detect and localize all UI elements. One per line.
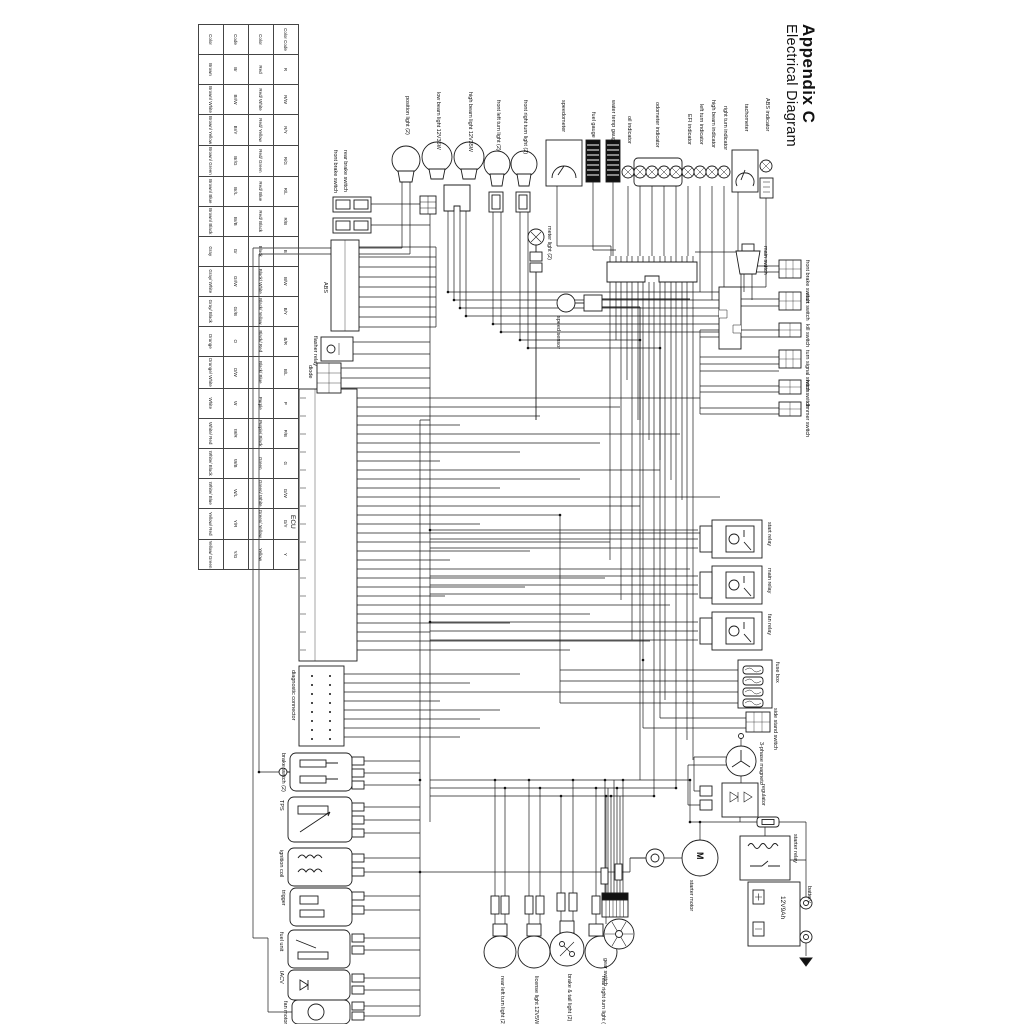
rear-bulbs bbox=[484, 893, 617, 968]
label-brake-tail-light: brake & tail light (2) bbox=[566, 974, 572, 1021]
label-ecu: ECU bbox=[289, 515, 296, 529]
label-tachometer: tachometer bbox=[743, 104, 749, 132]
label-speedometer: speedometer bbox=[560, 100, 566, 132]
label-oil-indicator: oil indicator bbox=[626, 116, 632, 144]
label-iacv: IACV bbox=[278, 971, 284, 984]
label-main-switch: main switch bbox=[762, 246, 768, 275]
label-gear-switch: gear switch bbox=[602, 958, 608, 986]
label-low-beam-light: low beam light 12V35W bbox=[435, 92, 441, 150]
label-diagnostic-connector: diagnostic connector bbox=[290, 670, 296, 720]
label-start-relay: start relay bbox=[766, 522, 772, 546]
label-diode: diode bbox=[307, 365, 313, 378]
label-rear-left-turn: rear left turn light (2) bbox=[499, 976, 505, 1024]
color-table-row-codes-2: CodeBrBr/WBr/YBr/GBr/LBr/BGrGr/WGr/BOO/W… bbox=[224, 25, 249, 570]
left-small-units bbox=[317, 197, 371, 393]
label-ignition-coil: ignition coil bbox=[278, 850, 284, 877]
battery-spec-text: 12V9Ah bbox=[779, 896, 786, 919]
power-section bbox=[646, 734, 812, 967]
label-starter-relay: starter relay bbox=[792, 834, 798, 863]
starter-motor-m-symbol: M bbox=[695, 852, 705, 860]
label-main-relay: main relay bbox=[766, 568, 772, 593]
page-title: Appendix C bbox=[798, 24, 818, 123]
label-fuse-box: fuse box bbox=[774, 662, 780, 683]
label-odometer-indicator: odometer indicator bbox=[654, 102, 660, 148]
label-efi-indicator: EFI indicator bbox=[686, 114, 692, 145]
label-meter-light: meter light (2) bbox=[546, 226, 552, 260]
bottom-left-components bbox=[279, 753, 364, 1024]
label-battery: battery bbox=[806, 886, 812, 903]
label-magneto: 3-phase magneto bbox=[758, 742, 764, 785]
label-high-beam-indicator: high beam indicator bbox=[710, 100, 716, 148]
label-sw-start: start switch bbox=[804, 293, 810, 321]
ecu-block bbox=[299, 389, 357, 746]
label-left-turn-indicator: left turn indicator bbox=[698, 104, 704, 145]
label-rear-brake-switch: rear brake switch bbox=[342, 150, 348, 192]
right-column-units bbox=[700, 244, 801, 732]
label-license-light: license light 12V5W bbox=[533, 976, 539, 1024]
label-side-stand-switch: side stand switch bbox=[772, 708, 778, 750]
color-table-row-colors-1: ColorRedRed/ WhiteRed/ YellowRed/ GreenR… bbox=[249, 25, 274, 570]
label-starter-motor: starter motor bbox=[688, 880, 694, 911]
label-right-turn-indicator: right turn indicator bbox=[722, 106, 728, 150]
color-table-row-codes-1: Color CodeRR/WR/YR/GR/LR/BBB/WB/YB/RB/LP… bbox=[274, 25, 299, 570]
component-symbols bbox=[279, 140, 812, 1024]
label-sw-kill: kill switch bbox=[804, 324, 810, 347]
color-table-row-colors-2: ColorBrownBrown/ WhiteBrown/ YellowBrown… bbox=[199, 25, 224, 570]
label-fuel-unit: fuel unit bbox=[278, 932, 284, 951]
label-fan-motor: fan motor bbox=[282, 1001, 288, 1024]
label-position-light: position light (2) bbox=[404, 96, 410, 135]
label-trigger: trigger bbox=[280, 890, 286, 906]
label-front-left-turn: front left turn light (2) bbox=[495, 100, 501, 151]
label-fuel-gauge: fuel gauge bbox=[590, 112, 596, 138]
diagram-page: Appendix C Electrical Diagram Color Code… bbox=[0, 0, 1024, 1024]
label-front-brake-switch: front brake switch bbox=[332, 150, 338, 193]
wiring-diagram-canvas bbox=[0, 0, 1024, 1024]
label-high-beam-light: high beam light 12V35W bbox=[467, 92, 473, 152]
front-bulbs bbox=[392, 142, 537, 214]
color-code-table: Color CodeRR/WR/YR/GR/LR/BBB/WB/YB/RB/LP… bbox=[198, 24, 299, 570]
label-brake-switch-2: brake switch (2) bbox=[280, 753, 286, 792]
label-sw-dimmer: dimmer switch bbox=[804, 402, 810, 437]
label-fan-relay: fan relay bbox=[766, 614, 772, 635]
label-flasher-relay: flasher relay bbox=[312, 336, 318, 366]
meter-light-and-speed-sensor bbox=[528, 229, 690, 420]
label-front-right-turn: front right turn light (2) bbox=[522, 100, 528, 154]
label-abs-indicator: ABS indicator bbox=[764, 98, 770, 131]
label-tps: TPS bbox=[278, 800, 284, 811]
label-abs-unit: ABS bbox=[322, 282, 328, 293]
gear-switch-symbol bbox=[601, 864, 634, 949]
page-subtitle: Electrical Diagram bbox=[783, 24, 799, 147]
label-regulator: regulator bbox=[760, 784, 766, 806]
label-water-temp-gauge: water temp gauge bbox=[610, 100, 616, 144]
label-speed-sensor: speed sensor bbox=[555, 316, 561, 349]
